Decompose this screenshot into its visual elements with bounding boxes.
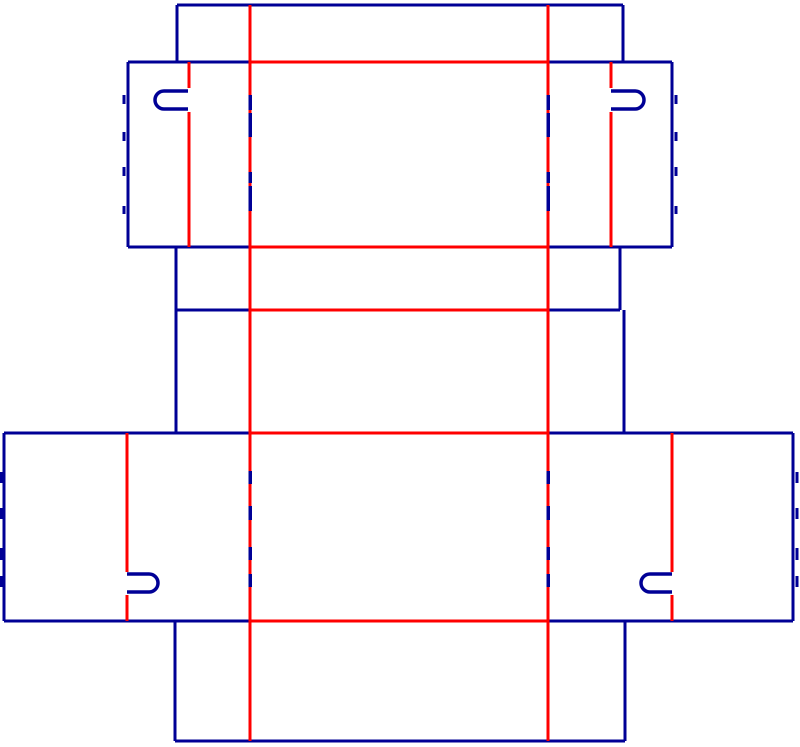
dieline-canvas bbox=[0, 0, 800, 747]
cut-lines-layer bbox=[4, 5, 793, 741]
hook-cutout bbox=[641, 574, 672, 592]
hook-cutout bbox=[611, 91, 644, 109]
perforation-ticks-layer bbox=[1, 95, 797, 587]
hook-cutout bbox=[127, 574, 158, 592]
hook-cutout bbox=[155, 91, 188, 109]
hook-cutouts-layer bbox=[127, 91, 672, 592]
box-dieline-diagram bbox=[0, 0, 800, 747]
crease-lines-layer bbox=[127, 5, 672, 741]
cut-crease-dashes-layer bbox=[250, 95, 548, 587]
